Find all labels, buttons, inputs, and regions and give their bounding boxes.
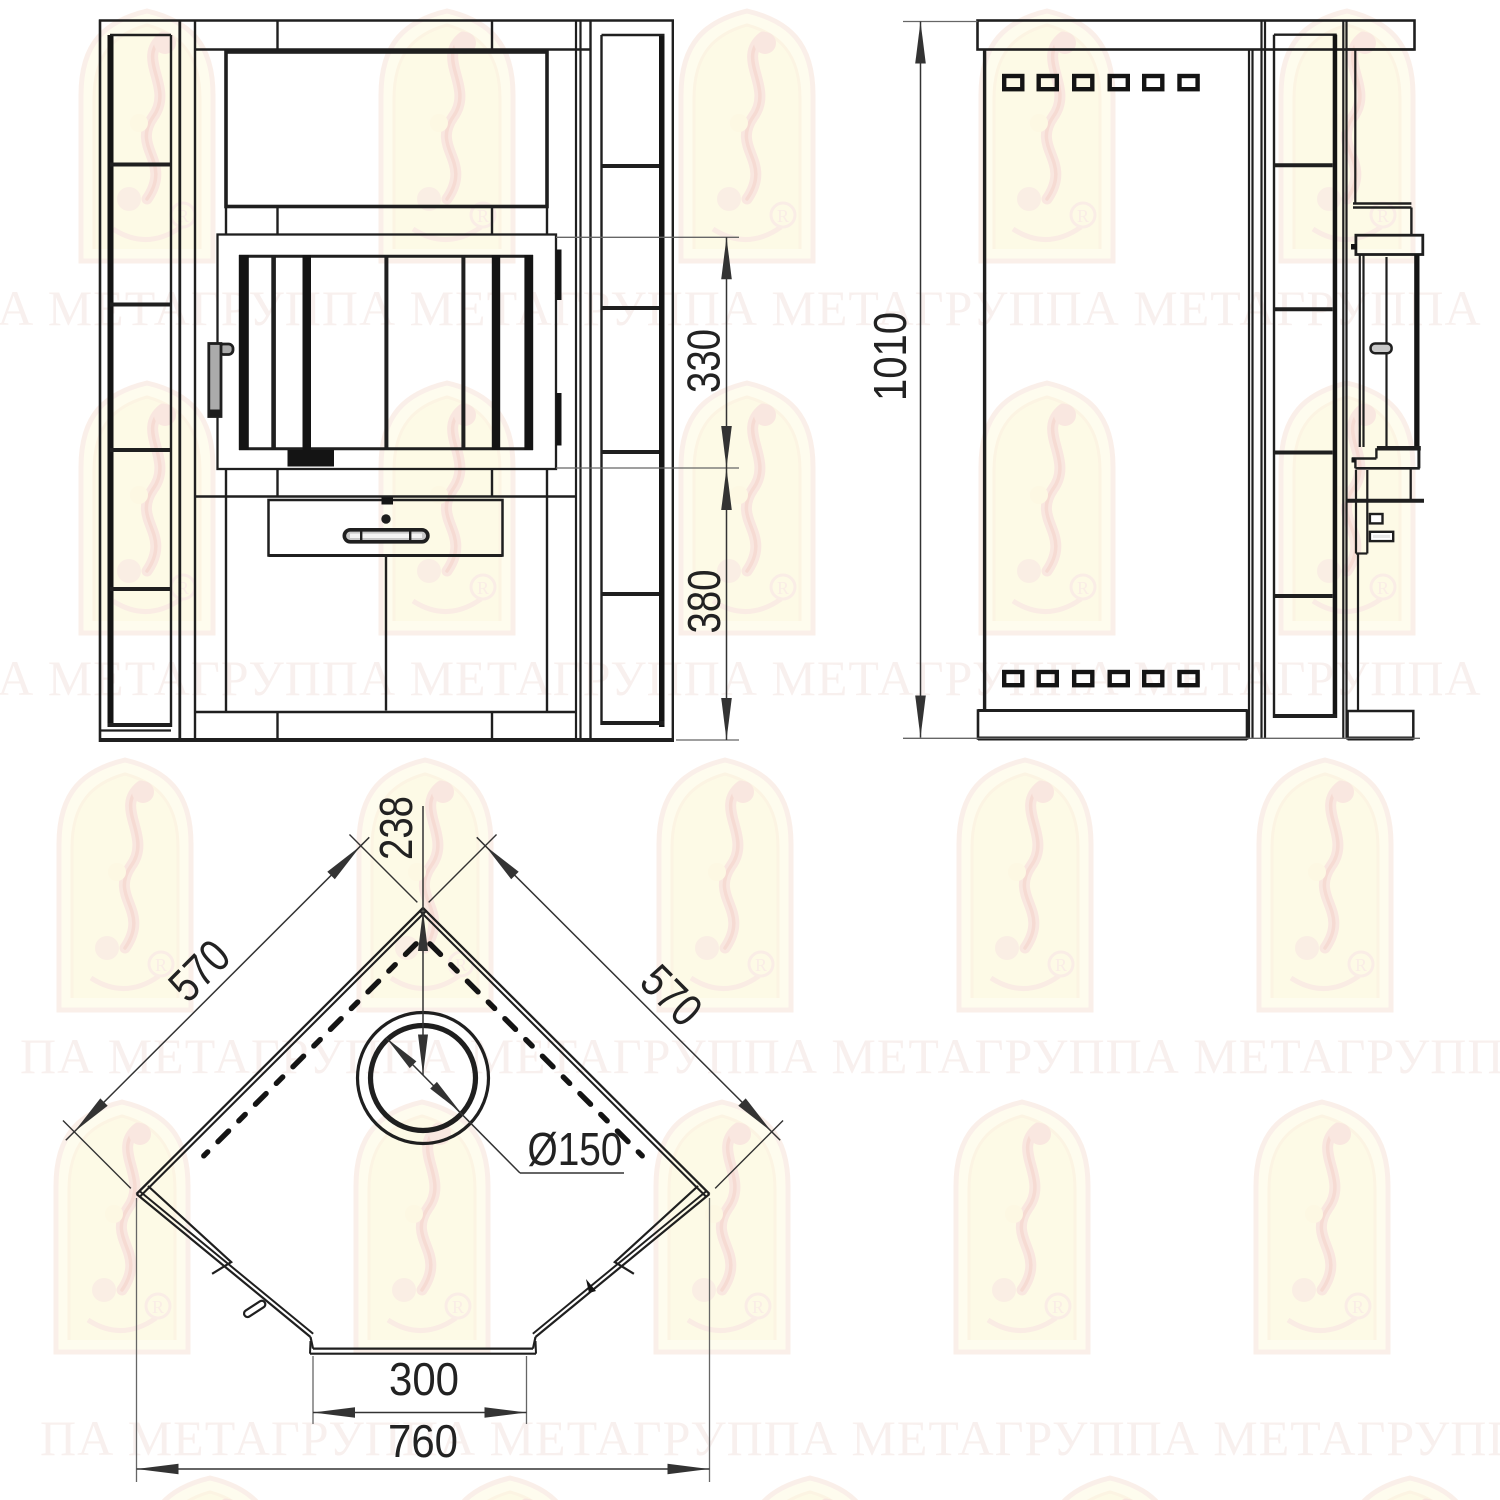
svg-text:380: 380 [678, 570, 730, 634]
svg-text:238: 238 [370, 796, 422, 860]
svg-text:ПА МЕТАГРУППА МЕТАГРУППА МЕТАГ: ПА МЕТАГРУППА МЕТАГРУППА МЕТАГРУППА МЕТА… [0, 650, 1482, 706]
svg-text:300: 300 [389, 1353, 459, 1405]
svg-text:ПА МЕТАГРУППА МЕТАГРУППА МЕТАГ: ПА МЕТАГРУППА МЕТАГРУППА МЕТАГРУППА МЕТА… [0, 280, 1482, 336]
svg-text:ПА МЕТАГРУППА МЕТАГРУППА МЕТАГ: ПА МЕТАГРУППА МЕТАГРУППА МЕТАГРУППА МЕТА… [40, 1410, 1500, 1466]
svg-text:760: 760 [388, 1415, 458, 1467]
svg-text:Ø150: Ø150 [528, 1123, 623, 1175]
svg-text:330: 330 [678, 329, 730, 393]
svg-text:1010: 1010 [864, 312, 916, 401]
svg-text:ПА МЕТАГРУППА МЕТАГРУППА МЕТАГ: ПА МЕТАГРУППА МЕТАГРУППА МЕТАГРУППА МЕТА… [20, 1028, 1500, 1084]
